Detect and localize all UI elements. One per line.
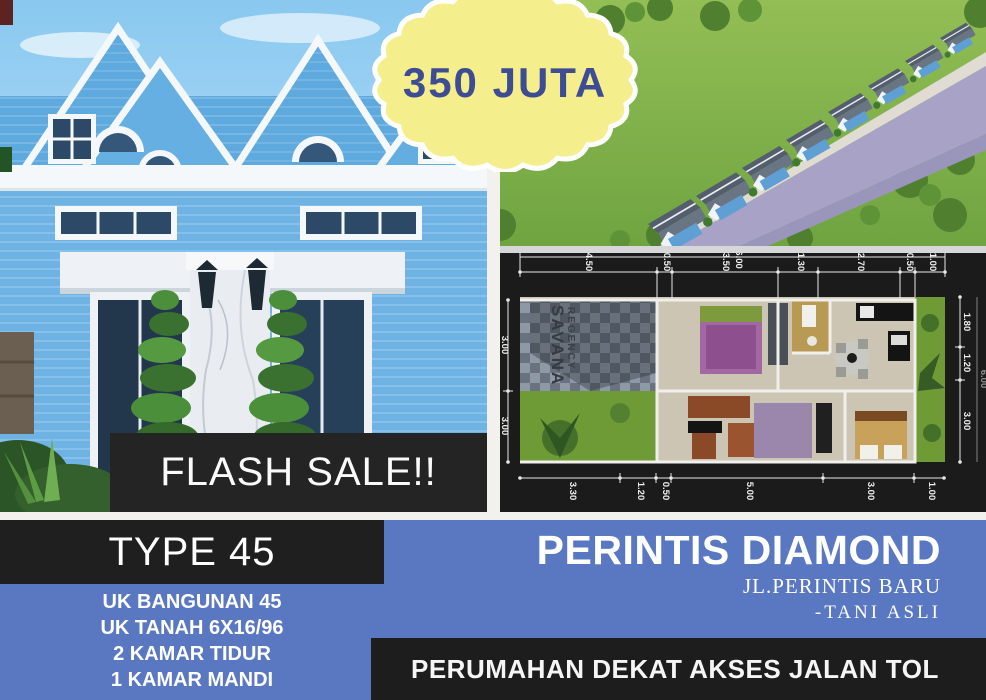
svg-text:3.30: 3.30: [567, 482, 578, 501]
project-address-line1: JL.PERINTIS BARU: [401, 572, 941, 600]
transom-window-left: [55, 206, 177, 240]
project-address-line2: -TANI ASLI: [401, 600, 941, 626]
svg-text:0.50: 0.50: [661, 253, 672, 271]
price-badge: 350 JUTA: [365, 0, 645, 172]
svg-text:4.50: 4.50: [583, 253, 594, 271]
price-text: 350 JUTA: [365, 0, 645, 172]
info-section: TYPE 45 UK BANGUNAN 45 UK TANAH 6X16/96 …: [0, 520, 986, 700]
plan-watermark-line1: SAVANA: [548, 305, 567, 386]
svg-text:1.80: 1.80: [961, 313, 972, 332]
flash-sale-box: FLASH SALE!!: [110, 433, 487, 512]
corner-mark: [0, 147, 12, 172]
svg-text:5.00: 5.00: [744, 482, 755, 501]
plan-living-room: [688, 396, 832, 459]
plan-dining-set: [835, 339, 869, 379]
svg-text:6.00: 6.00: [978, 370, 986, 389]
svg-text:1.00: 1.00: [927, 253, 938, 271]
svg-text:1.30: 1.30: [795, 253, 806, 271]
project-block: PERINTIS DIAMOND JL.PERINTIS BARU -TANI …: [401, 528, 941, 626]
banner-text: PERUMAHAN DEKAT AKSES JALAN TOL: [371, 654, 939, 685]
svg-text:1.20: 1.20: [635, 482, 646, 501]
type-title-box: TYPE 45: [0, 520, 384, 584]
spec-item: UK TANAH 6X16/96: [0, 615, 384, 641]
spec-list: UK BANGUNAN 45 UK TANAH 6X16/96 2 KAMAR …: [0, 589, 384, 693]
project-title: PERINTIS DIAMOND: [401, 528, 941, 572]
svg-text:3.00: 3.00: [500, 336, 510, 355]
svg-text:3.00: 3.00: [865, 482, 876, 501]
plan-watermark-line2: REGENCY: [565, 307, 576, 370]
svg-text:0.50: 0.50: [904, 253, 915, 271]
svg-text:16.00: 16.00: [733, 253, 744, 269]
highway-access-banner: PERUMAHAN DEKAT AKSES JALAN TOL: [371, 638, 986, 700]
floor-plan-drawing: SAVANA REGENCY: [500, 253, 986, 512]
spec-item: 1 KAMAR MANDI: [0, 667, 384, 693]
flash-sale-text: FLASH SALE!!: [160, 450, 437, 495]
svg-text:1.00: 1.00: [926, 482, 937, 501]
svg-text:3.00: 3.00: [961, 412, 972, 431]
real-estate-poster: SAVANA REGENCY: [0, 0, 986, 700]
spec-item: UK BANGUNAN 45: [0, 589, 384, 615]
floor-plan-panel: SAVANA REGENCY: [500, 253, 986, 512]
plan-front-garden: [520, 391, 657, 462]
type-title: TYPE 45: [108, 530, 275, 575]
svg-text:3.00: 3.00: [500, 417, 510, 436]
corner-mark: [0, 0, 13, 25]
section-divider: [0, 512, 986, 520]
svg-text:1.20: 1.20: [961, 354, 972, 373]
panel-gap: [500, 246, 986, 253]
svg-text:2.70: 2.70: [855, 253, 866, 271]
transom-window-right: [300, 206, 422, 240]
spec-item: 2 KAMAR TIDUR: [0, 641, 384, 667]
svg-text:0.50: 0.50: [660, 482, 671, 501]
plan-bed-2: [855, 411, 907, 459]
svg-text:3.50: 3.50: [720, 253, 731, 271]
